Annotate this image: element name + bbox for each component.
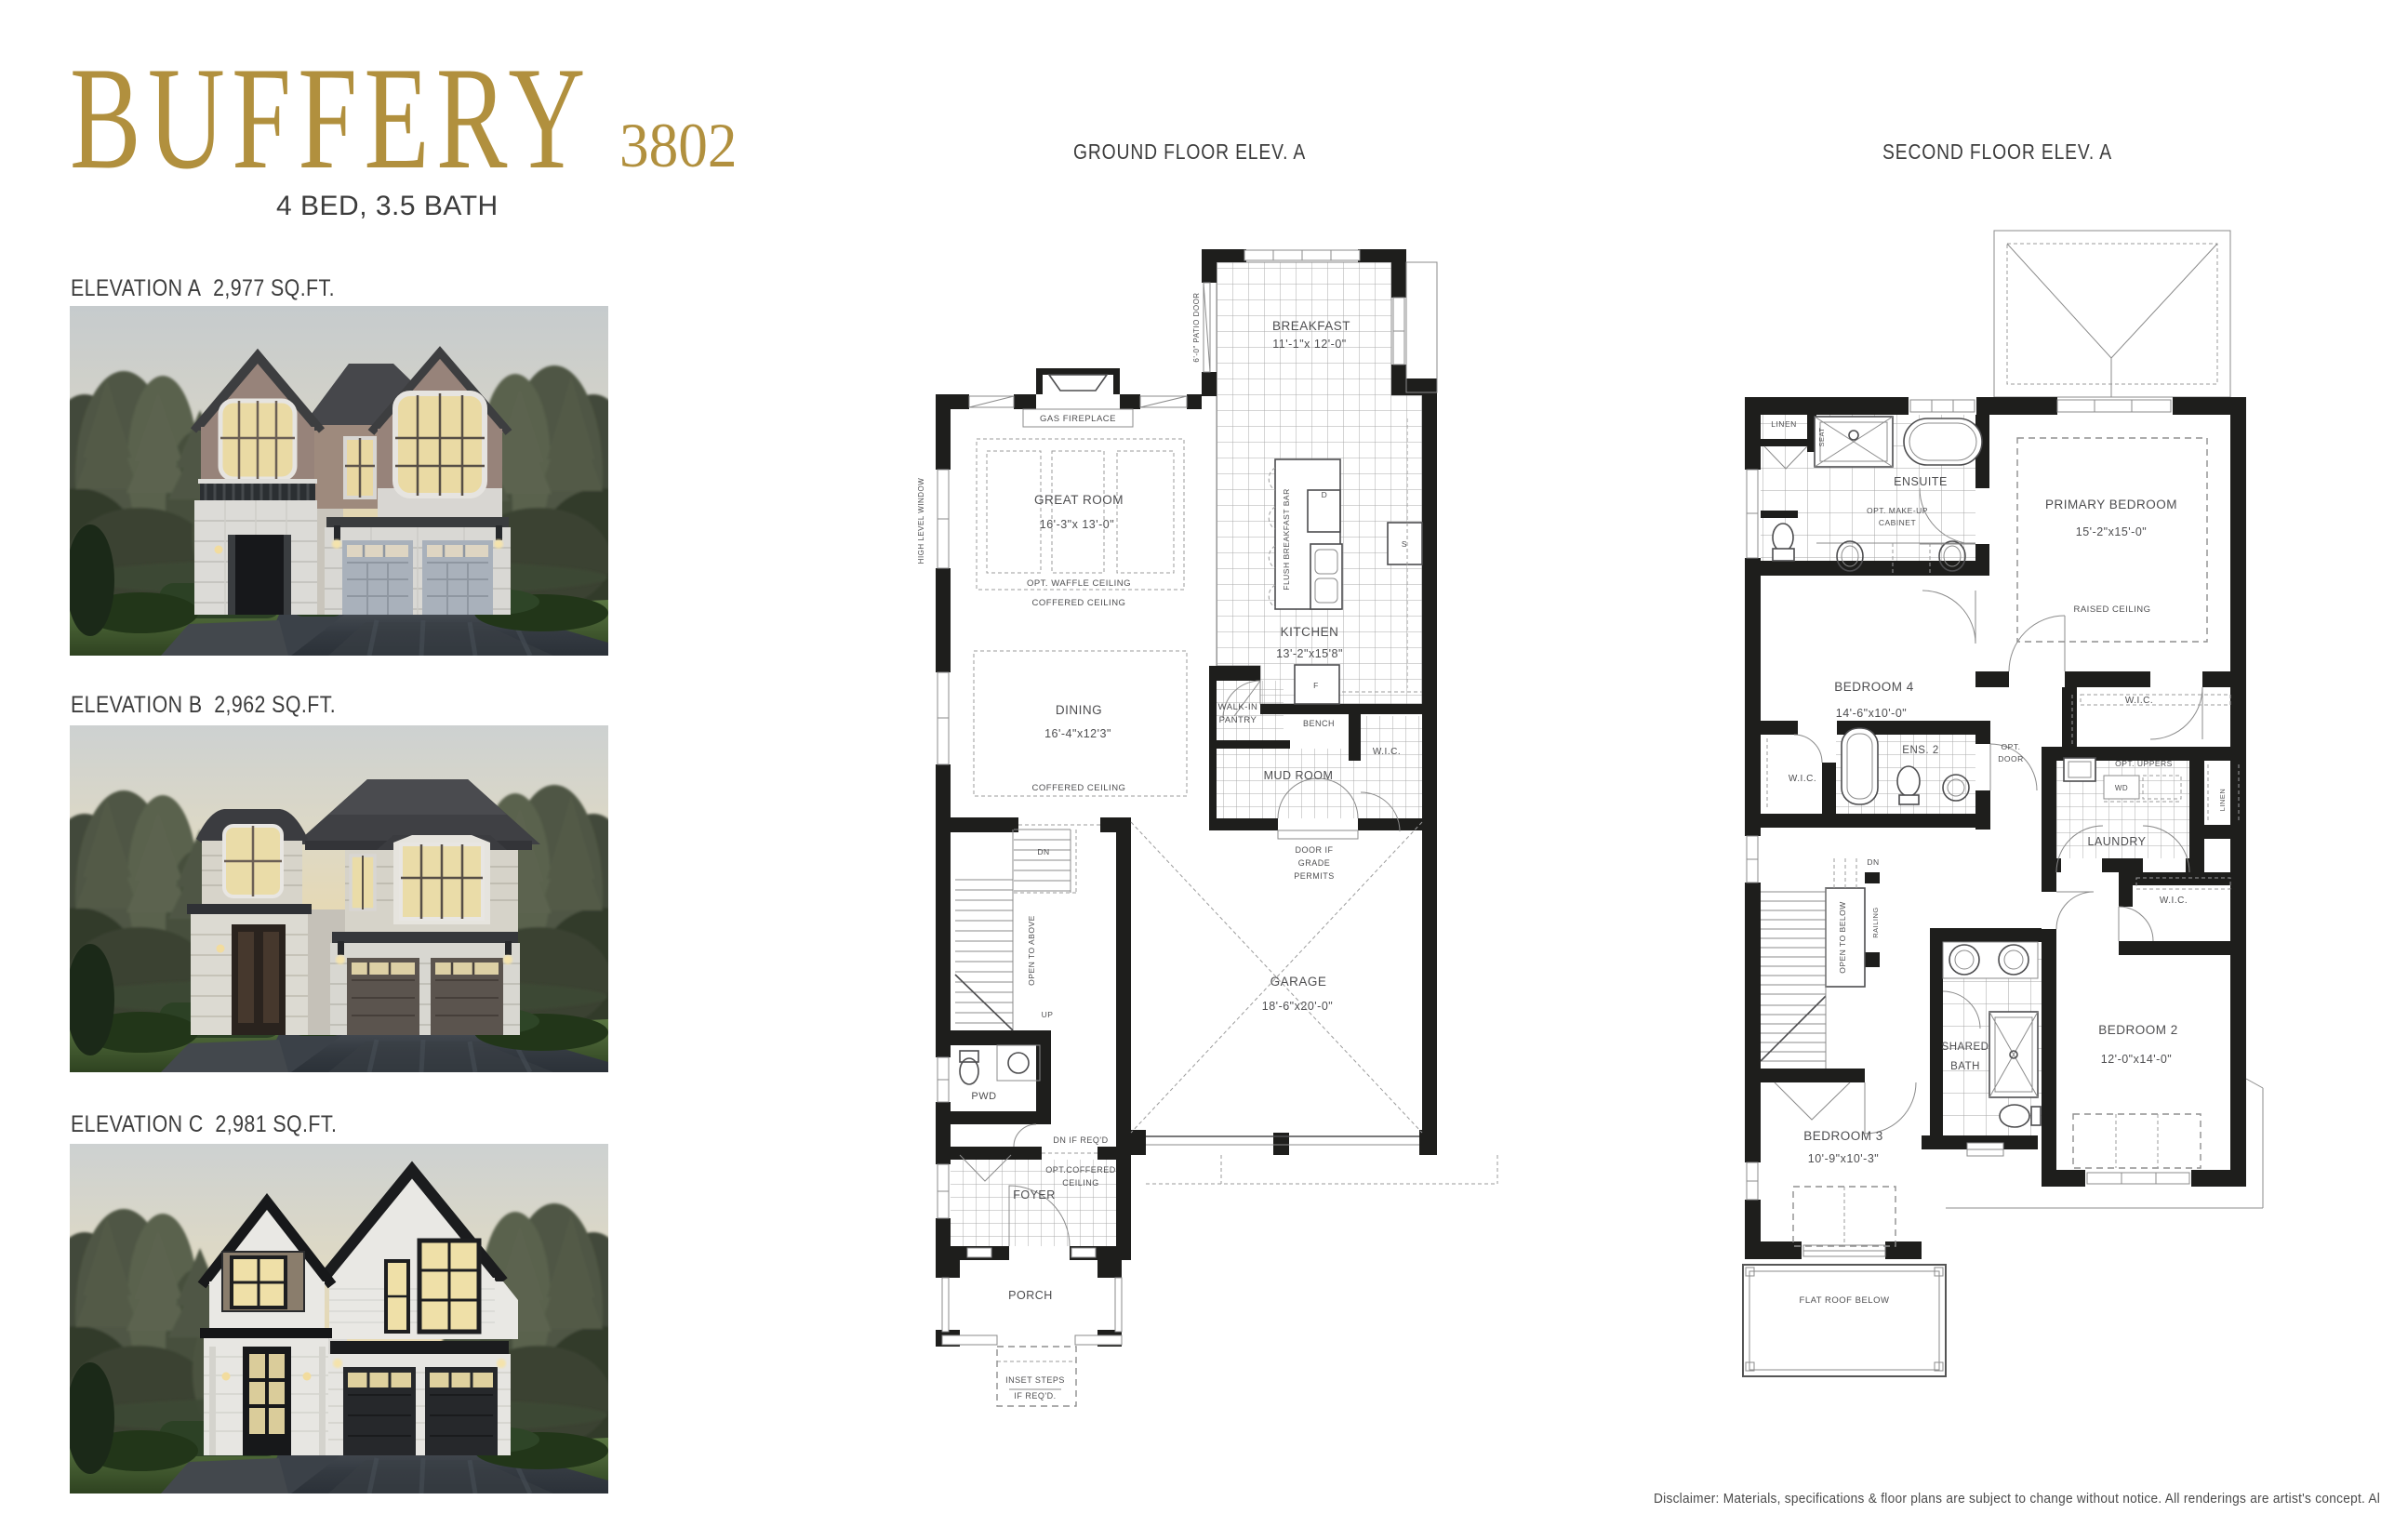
- svg-text:DOOR: DOOR: [1998, 754, 2024, 763]
- svg-text:W.I.C.: W.I.C.: [1789, 774, 1816, 784]
- svg-text:CABINET: CABINET: [1879, 518, 1916, 527]
- svg-text:GREAT ROOM: GREAT ROOM: [1034, 493, 1124, 507]
- svg-text:DOOR IF: DOOR IF: [1296, 845, 1334, 855]
- svg-text:GAS FIREPLACE: GAS FIREPLACE: [1040, 414, 1116, 424]
- svg-text:BEDROOM 4: BEDROOM 4: [1834, 680, 1914, 694]
- svg-text:SHARED: SHARED: [1942, 1042, 1989, 1053]
- svg-text:DINING: DINING: [1056, 703, 1102, 717]
- svg-text:16'-4"x12'3": 16'-4"x12'3": [1044, 727, 1111, 740]
- svg-text:UP: UP: [1042, 1010, 1054, 1019]
- svg-text:PRIMARY BEDROOM: PRIMARY BEDROOM: [2045, 498, 2177, 511]
- svg-text:PERMITS: PERMITS: [1294, 871, 1335, 881]
- svg-text:15'-2"x15'-0": 15'-2"x15'-0": [2076, 525, 2147, 538]
- svg-text:6'-0" PATIO DOOR: 6'-0" PATIO DOOR: [1192, 292, 1201, 362]
- svg-text:BEDROOM 3: BEDROOM 3: [1803, 1129, 1883, 1143]
- svg-text:OPT.: OPT.: [2002, 742, 2021, 751]
- svg-text:W.I.C.: W.I.C.: [1373, 747, 1401, 757]
- svg-text:16'-3"x 13'-0": 16'-3"x 13'-0": [1040, 518, 1114, 531]
- svg-text:OPT. MAKE-UP: OPT. MAKE-UP: [1867, 506, 1928, 515]
- svg-text:OPT. UPPERS: OPT. UPPERS: [2115, 759, 2173, 768]
- svg-text:DN IF REQ'D: DN IF REQ'D: [1053, 1135, 1108, 1145]
- svg-text:DN: DN: [1037, 847, 1049, 856]
- svg-text:MUD ROOM: MUD ROOM: [1264, 769, 1334, 782]
- svg-text:IF REQ'D.: IF REQ'D.: [1014, 1391, 1056, 1401]
- svg-text:FOYER: FOYER: [1013, 1188, 1056, 1201]
- svg-text:10'-9"x10'-3": 10'-9"x10'-3": [1808, 1152, 1879, 1165]
- svg-text:RAILING: RAILING: [1871, 907, 1880, 938]
- svg-text:SEAT: SEAT: [1817, 427, 1826, 446]
- svg-text:BREAKFAST: BREAKFAST: [1272, 319, 1350, 333]
- svg-text:KITCHEN: KITCHEN: [1281, 625, 1339, 639]
- svg-text:D: D: [1322, 490, 1328, 499]
- svg-text:GARAGE: GARAGE: [1270, 975, 1327, 989]
- svg-text:W.I.C.: W.I.C.: [2125, 696, 2153, 706]
- svg-text:FLAT ROOF BELOW: FLAT ROOF BELOW: [1800, 1295, 1890, 1306]
- svg-text:OPT. WAFFLE CEILING: OPT. WAFFLE CEILING: [1027, 578, 1131, 589]
- svg-text:LINEN: LINEN: [1771, 419, 1797, 429]
- svg-text:COFFERED CEILING: COFFERED CEILING: [1032, 783, 1126, 793]
- svg-text:PWD: PWD: [971, 1091, 996, 1102]
- svg-text:13'-2"x15'8": 13'-2"x15'8": [1276, 647, 1343, 660]
- svg-text:CEILING: CEILING: [1062, 1178, 1099, 1188]
- svg-text:OPT.COFFERED: OPT.COFFERED: [1045, 1165, 1116, 1175]
- svg-text:WALK-IN: WALK-IN: [1218, 702, 1258, 712]
- svg-text:W.I.C.: W.I.C.: [2160, 896, 2188, 906]
- svg-text:FLUSH BREAKFAST BAR: FLUSH BREAKFAST BAR: [1282, 488, 1291, 590]
- svg-text:OPEN TO ABOVE: OPEN TO ABOVE: [1027, 915, 1036, 986]
- svg-text:PORCH: PORCH: [1008, 1289, 1053, 1302]
- svg-text:COFFERED CEILING: COFFERED CEILING: [1032, 598, 1126, 608]
- svg-text:RAISED CEILING: RAISED CEILING: [2073, 604, 2150, 615]
- svg-text:ENSUITE: ENSUITE: [1894, 475, 1948, 488]
- svg-text:HIGH LEVEL WINDOW: HIGH LEVEL WINDOW: [917, 478, 925, 564]
- svg-text:LAUNDRY: LAUNDRY: [2087, 835, 2146, 848]
- svg-text:BENCH: BENCH: [1303, 719, 1335, 728]
- svg-text:LINEN: LINEN: [2218, 789, 2227, 812]
- svg-text:PANTRY: PANTRY: [1219, 715, 1257, 725]
- svg-text:F: F: [1313, 681, 1319, 690]
- svg-text:WD: WD: [2115, 784, 2128, 792]
- svg-text:12'-0"x14'-0": 12'-0"x14'-0": [2101, 1053, 2172, 1066]
- svg-text:18'-6"x20'-0": 18'-6"x20'-0": [1262, 1000, 1333, 1013]
- svg-text:DN: DN: [1867, 857, 1879, 867]
- svg-text:S: S: [1402, 539, 1407, 549]
- svg-text:OPEN TO BELOW: OPEN TO BELOW: [1838, 901, 1847, 974]
- svg-text:ENS. 2: ENS. 2: [1902, 745, 1938, 756]
- svg-text:GRADE: GRADE: [1298, 858, 1331, 868]
- svg-text:14'-6"x10'-0": 14'-6"x10'-0": [1836, 707, 1907, 720]
- svg-text:11'-1"x 12'-0": 11'-1"x 12'-0": [1272, 338, 1346, 351]
- svg-text:BATH: BATH: [1950, 1061, 1980, 1072]
- svg-text:INSET STEPS: INSET STEPS: [1005, 1375, 1065, 1385]
- svg-text:BEDROOM 2: BEDROOM 2: [2098, 1023, 2178, 1037]
